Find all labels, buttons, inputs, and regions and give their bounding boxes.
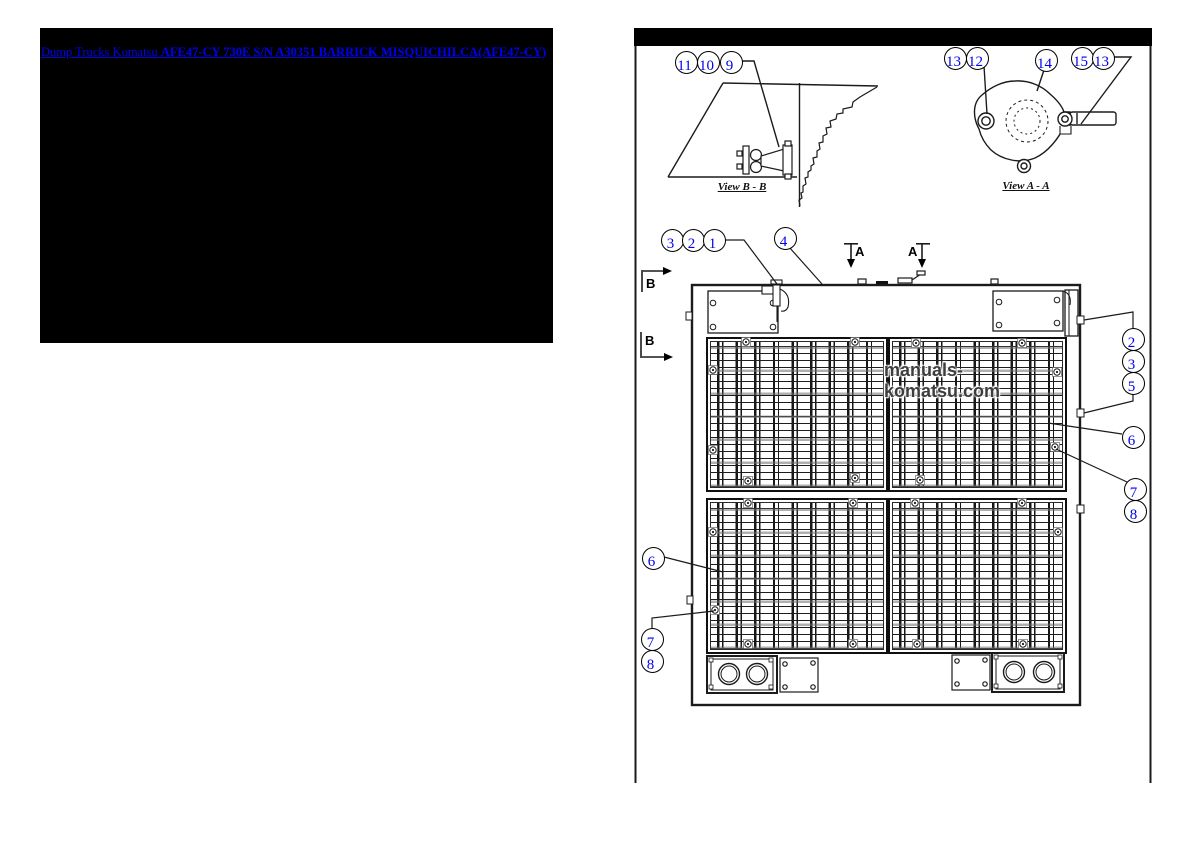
section-a-letter-left: A [855, 245, 864, 258]
callout-10[interactable]: 10 [697, 51, 720, 74]
view-aa-label: View A - A [997, 180, 1055, 192]
callout-12[interactable]: 12 [966, 47, 989, 70]
section-a-letter-right: A [908, 245, 917, 258]
view-aa-drawing [974, 57, 1131, 173]
grille-louvers [710, 341, 884, 488]
callout-13-b[interactable]: 13 [1092, 47, 1115, 70]
view-bb-label: View B - B [712, 181, 772, 193]
callout-11[interactable]: 11 [675, 51, 698, 74]
radiator-grille-bottom-right [888, 498, 1067, 654]
watermark: manuals-komatsu.com [884, 360, 1066, 402]
radiator-grille-top-left [706, 337, 888, 492]
grille-louvers [892, 502, 1063, 650]
callout-6-a[interactable]: 6 [1122, 426, 1145, 449]
callout-7-b[interactable]: 7 [641, 628, 664, 651]
plate-bottom-right [952, 655, 990, 690]
model-link-prefix: Dump Trucks Komatsu [41, 45, 161, 59]
callout-2-b[interactable]: 2 [1122, 328, 1145, 351]
model-link[interactable]: Dump Trucks Komatsu AFE47-CY 730E S/N A3… [40, 28, 553, 61]
plate-bottom-left [780, 658, 818, 692]
callout-8-a[interactable]: 8 [1124, 500, 1147, 523]
grille-louvers [710, 502, 884, 650]
fan-box-left [707, 656, 777, 693]
section-b-letter-bottom: B [645, 334, 654, 347]
callout-1[interactable]: 1 [703, 229, 726, 252]
callout-4[interactable]: 4 [774, 227, 797, 250]
callout-3-b[interactable]: 3 [1122, 350, 1145, 373]
callout-7-a[interactable]: 7 [1124, 478, 1147, 501]
fan-box-right [992, 653, 1064, 692]
callout-6-b[interactable]: 6 [642, 547, 665, 570]
diagram-top-bar [634, 28, 1152, 46]
callout-13-a[interactable]: 13 [944, 47, 967, 70]
radiator-grille-bottom-left [706, 498, 888, 654]
manual-page: Dump Trucks Komatsu AFE47-CY 730E S/N A3… [0, 0, 1190, 842]
view-bb-drawing [668, 61, 878, 207]
callout-5[interactable]: 5 [1122, 372, 1145, 395]
header-block: Dump Trucks Komatsu AFE47-CY 730E S/N A3… [40, 28, 553, 343]
callout-8-b[interactable]: 8 [641, 650, 664, 673]
section-b-letter-top: B [646, 277, 655, 290]
callout-9[interactable]: 9 [720, 51, 743, 74]
model-link-model: AFE47-CY 730E S/N A30351 BARRICK MISQUIC… [161, 45, 546, 59]
callout-14[interactable]: 14 [1035, 49, 1058, 72]
